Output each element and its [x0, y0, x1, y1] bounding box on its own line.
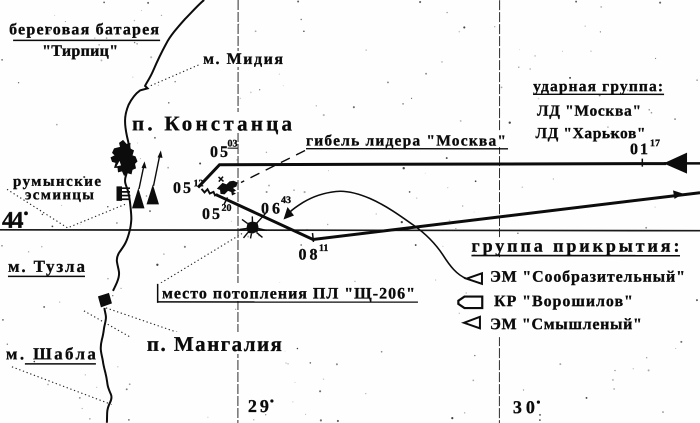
svg-text:береговая батарея: береговая батарея — [9, 21, 159, 38]
svg-text:м. Мидия: м. Мидия — [203, 51, 283, 68]
svg-text:05: 05 — [173, 180, 191, 197]
svg-text:20: 20 — [221, 203, 231, 214]
svg-text:12: 12 — [194, 178, 204, 189]
svg-text:05: 05 — [210, 144, 228, 161]
svg-text:группа прикрытия:: группа прикрытия: — [471, 236, 679, 256]
svg-text:05: 05 — [202, 206, 220, 223]
svg-text:"Тирпиц": "Тирпиц" — [42, 43, 118, 60]
svg-text:м. Тузла: м. Тузла — [8, 257, 86, 276]
svg-text:ЭМ "Сообразительный": ЭМ "Сообразительный" — [490, 269, 685, 286]
svg-text:30: 30 — [513, 397, 535, 417]
svg-text:эсминцы: эсминцы — [25, 187, 94, 203]
svg-text:06: 06 — [261, 200, 280, 217]
svg-text:44: 44 — [2, 208, 24, 234]
svg-text:17: 17 — [650, 138, 660, 149]
svg-text:ЛД "Харьков": ЛД "Харьков" — [536, 125, 646, 142]
svg-text:ударная группа:: ударная группа: — [533, 78, 663, 95]
svg-text:гибель лидера "Москва": гибель лидера "Москва" — [306, 132, 506, 149]
svg-text:ЛД "Москва": ЛД "Москва" — [537, 103, 641, 120]
svg-text:29: 29 — [248, 396, 269, 416]
svg-text:ЭМ "Смышленый": ЭМ "Смышленый" — [490, 316, 642, 333]
svg-text:01: 01 — [630, 141, 648, 158]
svg-text:место потопления ПЛ "Щ-206": место потопления ПЛ "Щ-206" — [162, 285, 415, 302]
svg-text:п. Мангалия: п. Мангалия — [147, 332, 282, 356]
svg-text:43: 43 — [281, 195, 291, 206]
svg-text:КР "Ворошилов": КР "Ворошилов" — [494, 293, 633, 310]
svg-text:п. Констанца: п. Констанца — [132, 111, 293, 135]
svg-text:м. Шабла: м. Шабла — [6, 344, 97, 363]
svg-text:11: 11 — [319, 243, 328, 254]
svg-text:08: 08 — [298, 246, 317, 263]
